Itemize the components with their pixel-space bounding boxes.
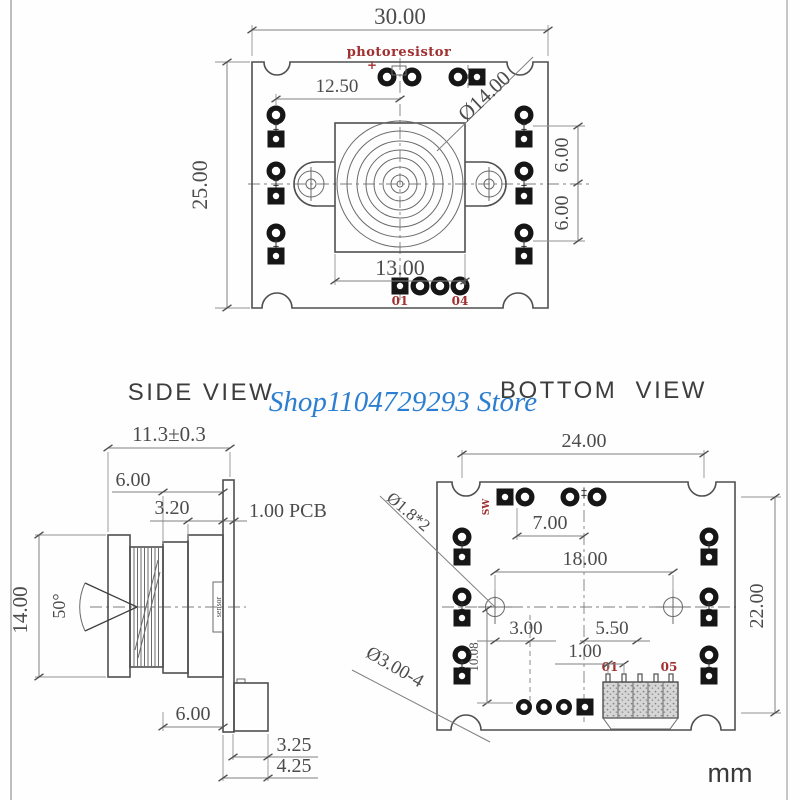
- dim-text-lens-front: 6.00: [116, 469, 151, 491]
- technical-drawing-page: 30.00 25.00 12.50 Ø14.00: [0, 0, 800, 800]
- dim-text-offset-a: 3.00: [509, 618, 542, 639]
- dim-text-notch-diameter: Ø3.00-4: [362, 642, 427, 692]
- square-pad: [701, 668, 718, 685]
- round-pad: [267, 106, 286, 125]
- dim-text-connector-height: 6.00: [176, 703, 211, 725]
- plus-mark: +: [367, 58, 377, 72]
- round-pad: [431, 277, 450, 296]
- bottom-view-pads: [453, 488, 719, 716]
- dim-text-connector-total: 4.25: [277, 755, 312, 777]
- round-pad: [515, 106, 534, 125]
- square-pad: [701, 549, 718, 566]
- dim-text-lens-holder-width: 13.00: [375, 255, 425, 280]
- dim-connector-height: 6.00: [159, 703, 228, 731]
- dim-text-board-width: 30.00: [374, 4, 426, 29]
- square-pad: [516, 131, 533, 148]
- round-pad: [588, 488, 607, 507]
- dim-text-connector-width: 3.25: [277, 734, 312, 756]
- dim-text-lens-offset: 12.50: [316, 76, 359, 97]
- square-pad: [701, 610, 718, 627]
- photoresistor-label: photoresistor: [347, 45, 452, 60]
- dim-pad-pitches: 6.00 6.00: [533, 123, 585, 244]
- square-pad: [268, 188, 285, 205]
- dim-text-pin-pitch: 1.00: [568, 641, 601, 662]
- bottom-view: 01 05 24.00 7.00 18.00: [352, 430, 781, 742]
- square-pad: [392, 278, 409, 295]
- dim-text-offset-c: 10.08: [466, 642, 481, 671]
- dim-text-hole-pitch: 18.00: [563, 548, 608, 570]
- pcb-side: [223, 480, 234, 732]
- round-pad: [561, 488, 580, 507]
- dim-text-offset-b: 5.50: [595, 618, 628, 639]
- square-pad: [454, 549, 471, 566]
- dim-offset-c: 10.08: [466, 606, 513, 706]
- round-pad: [516, 488, 535, 507]
- dim-holder-pcb: 3.20 1.00 PCB: [150, 497, 327, 540]
- round-pad: [556, 699, 572, 715]
- dim-text-bottom-width: 24.00: [562, 430, 607, 452]
- lens-assembly: [108, 535, 223, 677]
- sensor-label: sensor: [214, 596, 223, 617]
- dim-text-pcb: 1.00 PCB: [249, 500, 327, 522]
- dim-board-height: 25.00: [187, 59, 250, 311]
- dim-connector-offsets: 3.00 5.50 1.00: [477, 618, 650, 675]
- square-pad: [497, 489, 514, 506]
- dim-bottom-height: 22.00: [741, 494, 781, 716]
- dim-text-bottom-height: 22.00: [746, 584, 768, 629]
- dim-text-board-height: 25.00: [187, 160, 212, 210]
- square-pad: [268, 131, 285, 148]
- unit-label: mm: [698, 758, 762, 789]
- dim-text-total-depth: 11.3±0.3: [132, 422, 206, 446]
- dim-bottom-width: 24.00: [458, 430, 709, 478]
- pin5-label-bottom: 05: [661, 660, 678, 674]
- side-view: sensor 50° 11.3±0.3 6.00: [8, 422, 327, 781]
- round-pad: [536, 699, 552, 715]
- round-pad: [516, 699, 532, 715]
- round-pad: [449, 68, 468, 87]
- store-watermark: Shop1104729293 Store: [258, 386, 548, 419]
- dim-text-hole-diameter: Ø1.8*2: [383, 488, 434, 535]
- dim-connector-widths: 3.25 4.25: [219, 734, 319, 781]
- connector-side: [234, 679, 268, 731]
- square-pad: [454, 610, 471, 627]
- round-pad: [378, 68, 397, 87]
- dim-pad-offset: 7.00: [513, 508, 589, 540]
- connector-pins: [606, 674, 673, 682]
- round-pad: [267, 162, 286, 181]
- pcb-outline-bottom: [437, 482, 735, 730]
- top-view: 30.00 25.00 12.50 Ø14.00: [187, 4, 592, 311]
- connector-bottom: 01 05: [602, 660, 678, 729]
- square-pad: [577, 699, 594, 716]
- dim-hole-diameter: Ø1.8*2: [380, 488, 496, 608]
- component-symbol: [581, 488, 586, 498]
- square-pad: [268, 248, 285, 265]
- pin4-label: 04: [452, 294, 469, 308]
- square-pad: [516, 248, 533, 265]
- dim-text-holder-len: 3.20: [155, 497, 190, 519]
- pin1-label: 01: [392, 294, 409, 308]
- round-pad: [403, 68, 422, 87]
- square-pad: [516, 188, 533, 205]
- dim-text-lens-outer-dia: 14.00: [8, 586, 32, 633]
- sensor-block: sensor: [213, 582, 223, 632]
- dim-text-pad-offset: 7.00: [533, 512, 568, 534]
- dim-text-pitch-lower: 6.00: [551, 196, 573, 231]
- dim-text-fov: 50°: [49, 593, 69, 618]
- dim-text-pitch-upper: 6.00: [551, 138, 573, 173]
- round-pad: [515, 162, 534, 181]
- sw-label: SW: [482, 498, 492, 515]
